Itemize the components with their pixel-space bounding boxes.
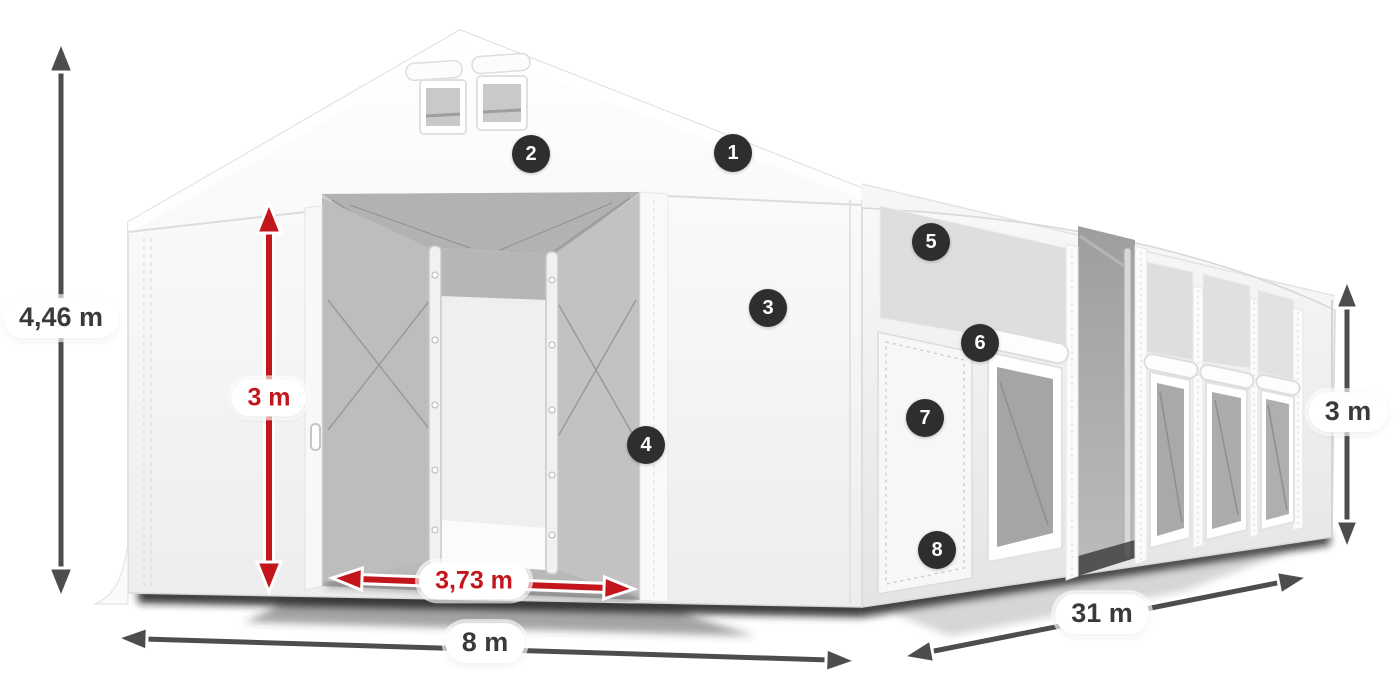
tent-illustration xyxy=(0,0,1400,700)
entrance-door-handle xyxy=(311,424,320,450)
callout-badge-5[interactable]: 5 xyxy=(912,223,950,261)
dimension-label-entrance-width: 3,73 m xyxy=(419,562,529,599)
callout-badge-2[interactable]: 2 xyxy=(512,135,550,173)
entrance-opening xyxy=(305,192,668,602)
dimension-label-entrance-height: 3 m xyxy=(231,379,306,416)
entrance-left-door xyxy=(322,198,441,584)
side-window-3 xyxy=(1199,364,1255,540)
side-window-4 xyxy=(1255,374,1301,530)
side-door-opening xyxy=(1078,226,1135,576)
dimension-label-tent-width: 8 m xyxy=(446,623,525,663)
dimension-label-tent-length: 31 m xyxy=(1055,594,1149,634)
diagram-canvas: 4,46 m 3 m 3,73 m 8 m 31 m 3 m 1 2 3 4 5… xyxy=(0,0,1400,700)
callout-badge-6[interactable]: 6 xyxy=(961,324,999,362)
side-window-1 xyxy=(980,327,1070,562)
dimension-label-total-height: 4,46 m xyxy=(3,298,119,338)
callout-badge-3[interactable]: 3 xyxy=(749,289,787,327)
gable-vent-right xyxy=(472,53,531,130)
callout-badge-4[interactable]: 4 xyxy=(627,426,665,464)
callout-badge-1[interactable]: 1 xyxy=(714,134,752,172)
callout-badge-8[interactable]: 8 xyxy=(918,531,956,569)
dimension-label-side-height: 3 m xyxy=(1309,392,1388,432)
entrance-right-door xyxy=(546,194,640,598)
side-window-2 xyxy=(1143,353,1199,548)
callout-badge-7[interactable]: 7 xyxy=(906,399,944,437)
